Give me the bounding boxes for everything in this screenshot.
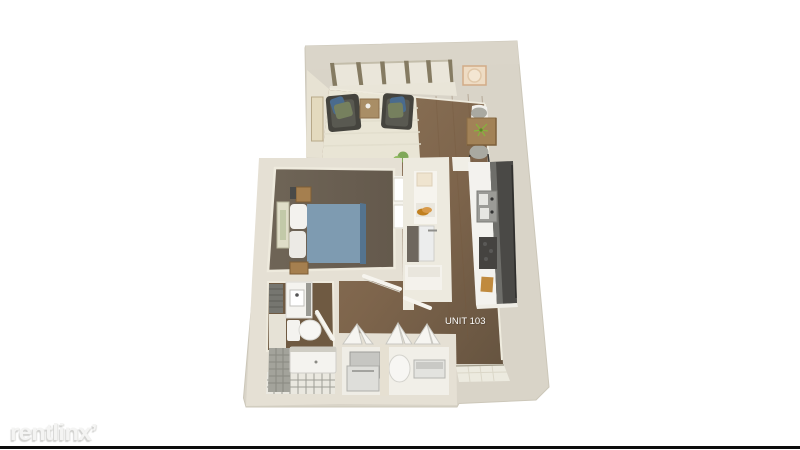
svg-text:UNIT 103: UNIT 103 — [445, 316, 485, 327]
